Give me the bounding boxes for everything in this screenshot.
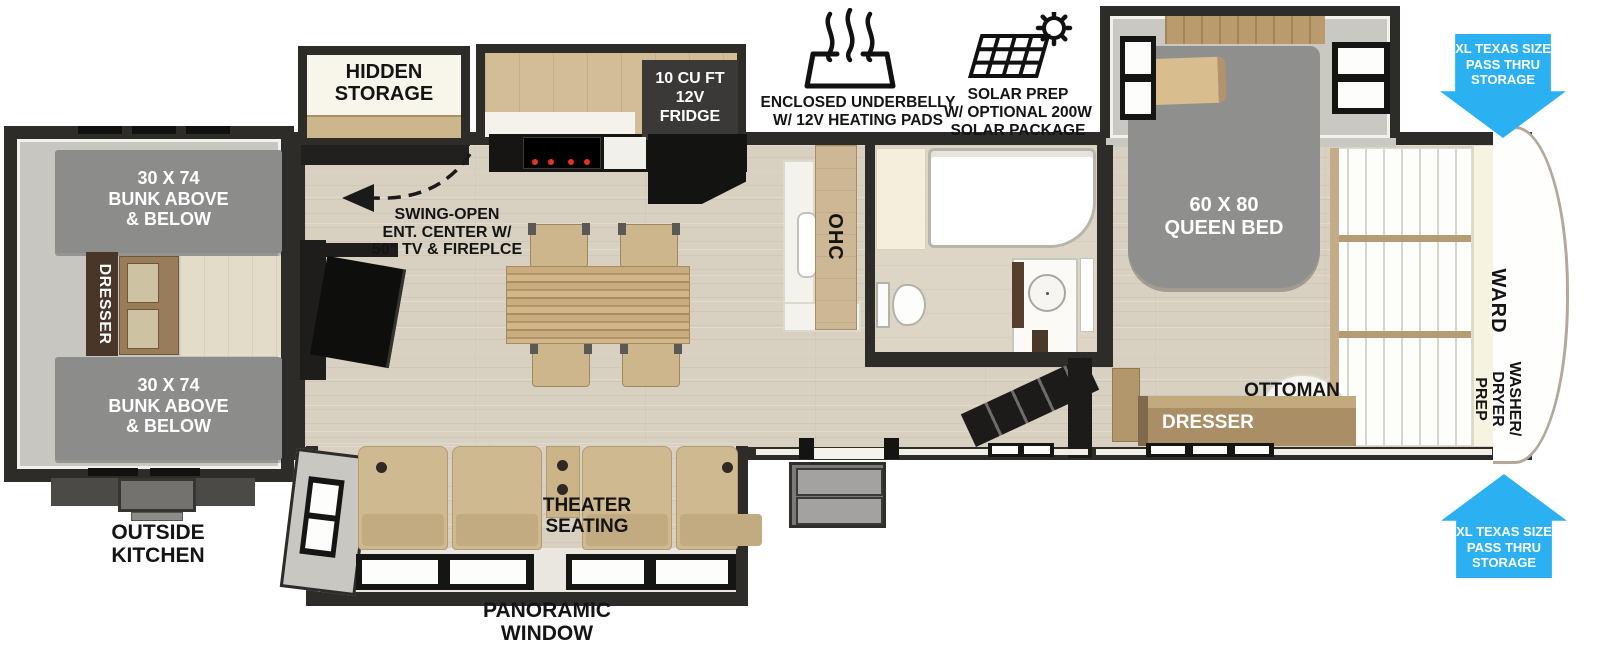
bedroom-slide-window-right — [1332, 42, 1390, 114]
dining-table — [506, 266, 690, 344]
linen-cabinet — [876, 148, 926, 250]
vanity-cabinet — [1032, 330, 1048, 352]
bathroom-wall-right — [1097, 145, 1113, 363]
outside-kitchen-label: OUTSIDE KITCHEN — [68, 522, 248, 567]
washer-dryer-prep-label: WASHER/ DRYER PREP — [1464, 343, 1522, 455]
ottoman-label: OTTOMAN — [1232, 381, 1352, 402]
entry-steps — [789, 462, 886, 528]
bunk-dresser: DRESSER — [86, 252, 118, 356]
dining-chair — [532, 343, 590, 387]
bedroom-steps-rail — [1068, 358, 1092, 458]
vanity-cabinet — [1012, 262, 1024, 328]
outside-kitchen-step — [131, 512, 183, 521]
dining-chair — [620, 224, 678, 268]
panoramic-window-label: PANORAMIC WINDOW — [452, 600, 642, 645]
entry-door-jamb — [799, 438, 814, 459]
bathroom-mirror — [1080, 258, 1094, 332]
bedroom-dresser: DRESSER — [1138, 396, 1356, 446]
cooktop — [523, 137, 601, 169]
bunk-bed-top: 30 X 74 BUNK ABOVE & BELOW — [55, 150, 282, 253]
bunk-window-slit — [186, 126, 230, 134]
rv-floorplan-diagram: 30 X 74 BUNK ABOVE & BELOW 30 X 74 BUNK … — [0, 0, 1600, 649]
bedroom-window — [1146, 443, 1274, 457]
outside-kitchen-griddle — [118, 478, 196, 512]
kitchen-sink-counter — [604, 137, 646, 169]
hidden-storage-cabinet — [307, 115, 461, 138]
bedroom-closet — [1112, 368, 1140, 442]
bunk-window-slit — [88, 468, 138, 476]
entry-door-jamb — [884, 438, 899, 459]
ent-center-note: SWING-OPEN ENT. CENTER W/ 50” TV & FIREP… — [352, 206, 542, 259]
hidden-storage-label: HIDDEN STORAGE — [307, 61, 461, 105]
pass-thru-bottom-label: XL TEXAS SIZE PASS THRU STORAGE — [1441, 524, 1567, 571]
bunk-room-floor — [180, 256, 281, 356]
dining-chair — [622, 343, 680, 387]
entry-door-opening — [814, 448, 884, 459]
heating-pads-icon — [800, 8, 900, 92]
panoramic-window-right — [566, 554, 736, 590]
theater-seating-label: THEATER SEATING — [512, 496, 662, 538]
bunk-window-slit — [132, 126, 176, 134]
bunk-window-slit — [150, 468, 200, 476]
bunk-dresser-cabinet — [119, 256, 179, 355]
toilet — [892, 284, 926, 326]
fridge-label-box: 10 CU FT 12V FRIDGE — [642, 60, 738, 140]
bunk-bed-bottom: 30 X 74 BUNK ABOVE & BELOW — [55, 357, 282, 460]
shower — [928, 148, 1096, 248]
solar-callout: SOLAR PREP W/ OPTIONAL 200W SOLAR PACKAG… — [928, 86, 1108, 139]
pass-thru-arrow-up: XL TEXAS SIZE PASS THRU STORAGE — [1441, 474, 1567, 578]
bed-headboard — [1165, 16, 1325, 44]
bunk-bottom-label: 30 X 74 BUNK ABOVE & BELOW — [55, 375, 282, 437]
panoramic-window-left — [356, 554, 534, 590]
tv — [310, 256, 406, 368]
bunk-dresser-label: DRESSER — [91, 254, 113, 354]
pass-thru-arrow-down: XL TEXAS SIZE PASS THRU STORAGE — [1440, 34, 1566, 138]
bedroom-dresser-label: DRESSER — [1162, 413, 1312, 434]
ohc-label: OHC — [826, 207, 846, 267]
fridge-label: 10 CU FT 12V FRIDGE — [642, 69, 738, 127]
window — [988, 443, 1054, 457]
bathroom-sink — [1028, 274, 1066, 312]
solar-prep-icon — [962, 12, 1080, 88]
bathroom-wall-left — [865, 145, 875, 363]
hidden-storage-area: HIDDEN STORAGE — [307, 55, 461, 115]
theater-seat — [358, 446, 448, 550]
kitchen-sink — [797, 212, 817, 278]
bunk-window-slit — [78, 126, 122, 134]
queen-bed-label: 60 X 80 QUEEN BED — [1128, 194, 1320, 240]
bunk-top-label: 30 X 74 BUNK ABOVE & BELOW — [55, 168, 282, 230]
bedroom-slide-window-left — [1120, 36, 1156, 120]
toilet-tank — [876, 282, 890, 328]
pass-thru-top-label: XL TEXAS SIZE PASS THRU STORAGE — [1440, 41, 1566, 88]
